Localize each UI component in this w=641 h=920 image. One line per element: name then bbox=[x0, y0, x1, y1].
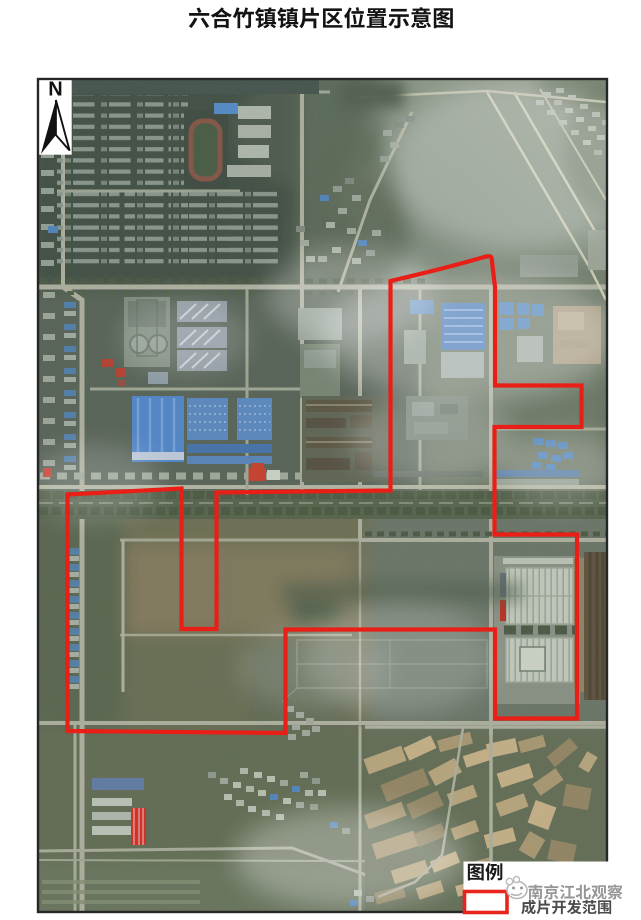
svg-text:N: N bbox=[48, 79, 62, 101]
